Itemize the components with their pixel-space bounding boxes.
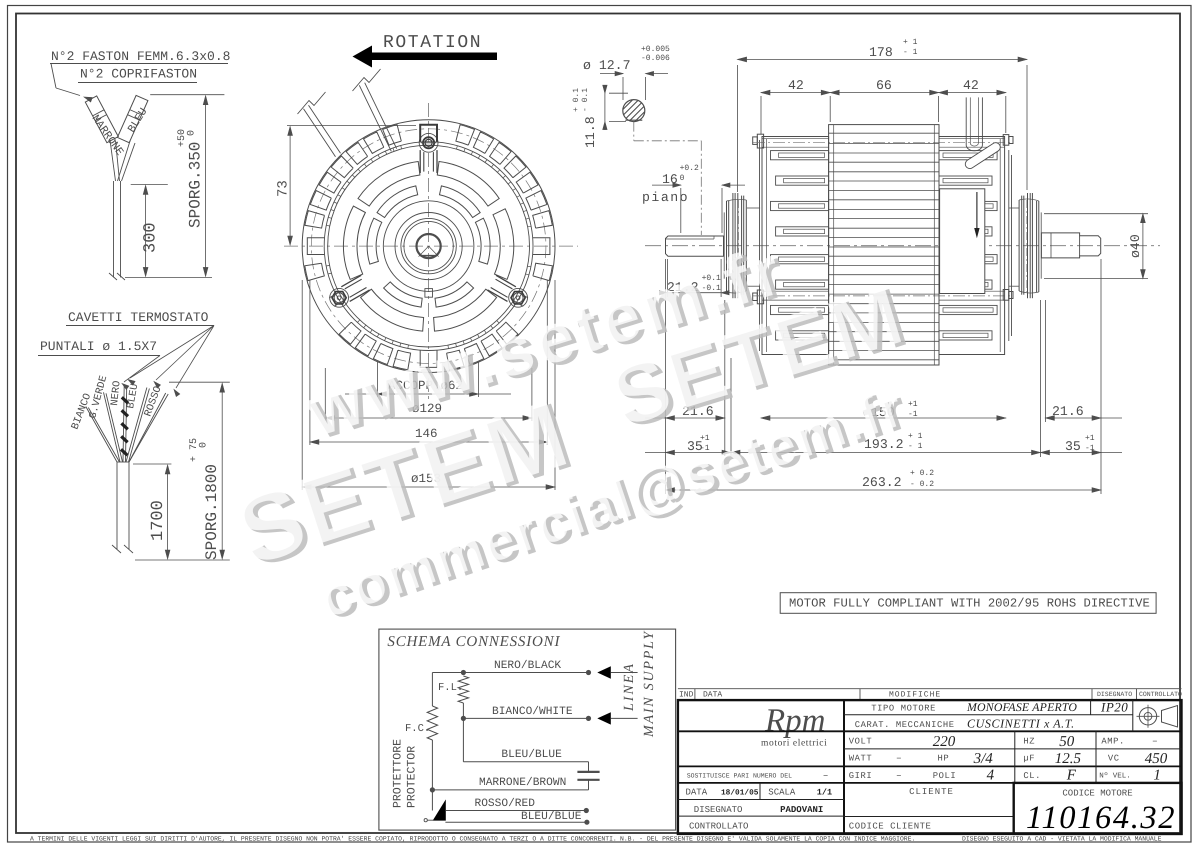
svg-text:CARAT. MECCANICHE: CARAT. MECCANICHE — [855, 720, 955, 730]
svg-text:Rpm: Rpm — [764, 703, 826, 739]
svg-text:MAIN SUPPLY: MAIN SUPPLY — [642, 630, 657, 738]
svg-text:Nº VEL.: Nº VEL. — [1099, 772, 1131, 781]
svg-text:CAVETTI TERMOSTATO: CAVETTI TERMOSTATO — [68, 310, 209, 325]
svg-text:DISEGNO ESEGUITO A CAD - VIETA: DISEGNO ESEGUITO A CAD - VIETATA LA MODI… — [962, 836, 1162, 843]
svg-text:WATT: WATT — [849, 754, 873, 764]
svg-text:IP20: IP20 — [1100, 700, 1128, 715]
svg-text:N.B. - DEL PRESENTE DISEGNO E': N.B. - DEL PRESENTE DISEGNO E' VALIDA SO… — [620, 836, 915, 843]
svg-text:NERO/BLACK: NERO/BLACK — [494, 659, 561, 672]
svg-text:+ 75: + 75 — [189, 438, 200, 462]
svg-text:11.8: 11.8 — [583, 116, 598, 148]
svg-text:CUSCINETTI x A.T.: CUSCINETTI x A.T. — [967, 717, 1075, 731]
svg-text:A TERMINI DELLE VIGENTI LEGGI: A TERMINI DELLE VIGENTI LEGGI SUI DIRITT… — [30, 836, 617, 843]
svg-text:1700: 1700 — [149, 500, 168, 541]
svg-text:POLI: POLI — [933, 771, 957, 781]
svg-text:SCHEMA CONNESSIONI: SCHEMA CONNESSIONI — [387, 634, 560, 650]
svg-text:–: – — [896, 753, 902, 764]
svg-text:+0.005: +0.005 — [641, 45, 670, 54]
svg-text:AMP.: AMP. — [1101, 737, 1125, 747]
svg-text:178: 178 — [869, 45, 893, 60]
svg-text:-0.006: -0.006 — [641, 54, 670, 63]
svg-text:TIPO MOTORE: TIPO MOTORE — [871, 704, 936, 714]
svg-text:DATA: DATA — [686, 788, 708, 798]
svg-text:+ 0.2: + 0.2 — [910, 469, 934, 478]
svg-text:MONOFASE APERTO: MONOFASE APERTO — [966, 700, 1077, 714]
svg-text:ROSSO/RED: ROSSO/RED — [475, 797, 536, 810]
svg-text:PROTECTOR: PROTECTOR — [406, 746, 419, 808]
svg-text:motori elettrici: motori elettrici — [761, 739, 827, 749]
svg-text:PUNTALI ø 1.5X7: PUNTALI ø 1.5X7 — [40, 339, 157, 354]
svg-text:–: – — [823, 770, 829, 781]
svg-text:N°2 FASTON FEMM.6.3x0.8: N°2 FASTON FEMM.6.3x0.8 — [51, 49, 230, 64]
svg-text:+1: +1 — [1085, 434, 1095, 443]
svg-text:BIANCO/WHITE: BIANCO/WHITE — [492, 705, 573, 718]
svg-text:F: F — [1066, 768, 1077, 784]
svg-text:450: 450 — [1145, 751, 1168, 767]
svg-text:66: 66 — [876, 78, 892, 93]
svg-text:4: 4 — [987, 768, 995, 784]
svg-text:BLEU/BLUE: BLEU/BLUE — [521, 810, 582, 823]
svg-text:220: 220 — [933, 734, 956, 750]
svg-text:0: 0 — [680, 174, 685, 183]
svg-text:50: 50 — [1059, 734, 1075, 750]
svg-text:HP: HP — [938, 754, 950, 764]
svg-text:MARRONE/BROWN: MARRONE/BROWN — [479, 776, 566, 789]
svg-text:+ 1: + 1 — [903, 38, 918, 47]
svg-text:CODICE CLIENTE: CODICE CLIENTE — [849, 822, 932, 832]
svg-text:0: 0 — [199, 442, 210, 448]
svg-text:+ 0.1: + 0.1 — [572, 88, 581, 112]
svg-text:- 0.1: - 0.1 — [581, 88, 590, 112]
svg-text:VOLT: VOLT — [849, 737, 873, 747]
svg-text:- 1: - 1 — [908, 442, 923, 451]
svg-text:1: 1 — [1153, 768, 1161, 784]
svg-text:DISEGNATO: DISEGNATO — [694, 805, 743, 815]
svg-text:GIRI: GIRI — [849, 771, 873, 781]
svg-text:DISEGNATO: DISEGNATO — [1097, 691, 1132, 698]
svg-text:73: 73 — [276, 180, 292, 197]
svg-text:18/01/05: 18/01/05 — [721, 789, 759, 798]
svg-text:VC: VC — [1108, 754, 1120, 764]
svg-text:ROTATION: ROTATION — [383, 33, 482, 53]
svg-text:1/1: 1/1 — [817, 788, 832, 798]
svg-text:12.5: 12.5 — [1055, 751, 1082, 767]
svg-text:110164.32: 110164.32 — [1026, 800, 1176, 836]
svg-text:21.6: 21.6 — [1052, 404, 1084, 419]
svg-text:CL.: CL. — [1023, 771, 1041, 781]
svg-text:–: – — [896, 770, 902, 781]
svg-text:–: – — [1152, 736, 1158, 747]
svg-text:- 0.2: - 0.2 — [910, 480, 934, 489]
svg-text:IND: IND — [679, 691, 694, 700]
svg-text:N°2 COPRIFASTON: N°2 COPRIFASTON — [80, 67, 197, 82]
svg-text:+0.2: +0.2 — [680, 164, 699, 173]
svg-text:3/4: 3/4 — [973, 751, 994, 767]
svg-text:CONTROLLATO: CONTROLLATO — [689, 822, 748, 832]
svg-text:LINEA: LINEA — [622, 662, 637, 712]
svg-text:F.C.: F.C. — [405, 723, 430, 735]
svg-text:MODIFICHE: MODIFICHE — [889, 691, 941, 700]
svg-text:HZ: HZ — [1023, 737, 1035, 747]
svg-text:BLEU/BLUE: BLEU/BLUE — [501, 748, 562, 761]
svg-text:CODICE MOTORE: CODICE MOTORE — [1062, 789, 1132, 799]
svg-text:µF: µF — [1023, 754, 1035, 764]
svg-text:42: 42 — [963, 78, 979, 93]
svg-text:piano: piano — [642, 190, 689, 205]
svg-text:35: 35 — [1065, 439, 1081, 454]
svg-text:DATA: DATA — [703, 691, 722, 700]
svg-text:PROTETTORE: PROTETTORE — [392, 739, 405, 808]
svg-text:+1: +1 — [908, 400, 918, 409]
svg-text:CLIENTE: CLIENTE — [909, 787, 954, 797]
svg-text:PADOVANI: PADOVANI — [780, 805, 823, 815]
svg-text:SCALA: SCALA — [768, 788, 796, 798]
svg-text:MOTOR FULLY COMPLIANT WITH 200: MOTOR FULLY COMPLIANT WITH 2002/95 ROHS … — [789, 597, 1150, 611]
svg-text:0: 0 — [187, 130, 198, 136]
svg-text:42: 42 — [788, 78, 804, 93]
svg-text:263.2: 263.2 — [862, 475, 902, 490]
svg-text:300: 300 — [142, 222, 161, 253]
svg-text:- 1: - 1 — [903, 48, 918, 57]
svg-text:SOSTITUISCE PARI NUMERO DEL: SOSTITUISCE PARI NUMERO DEL — [687, 773, 792, 780]
svg-text:ø40: ø40 — [1128, 234, 1143, 258]
svg-text:SPORG.350: SPORG.350 — [187, 142, 205, 228]
svg-text:ø 12.7: ø 12.7 — [583, 58, 630, 73]
svg-text:SPORG.1800: SPORG.1800 — [203, 464, 221, 560]
svg-text:CONTROLLATO: CONTROLLATO — [1139, 691, 1182, 698]
